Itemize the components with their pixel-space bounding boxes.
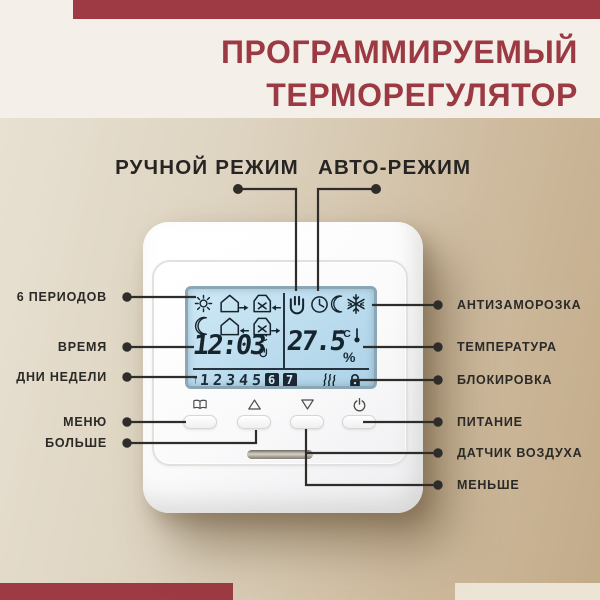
increase-button xyxy=(237,415,271,429)
time-dot xyxy=(122,342,131,351)
page-title: ПРОГРАММИРУЕМЫЙ ТЕРМОРЕГУЛЯТОР xyxy=(221,31,578,117)
arrow-up-icon xyxy=(245,396,263,412)
callout-temperature: ТЕМПЕРАТУРА xyxy=(457,339,557,355)
day-1: 1 xyxy=(199,371,210,389)
callout-less: МЕНЬШЕ xyxy=(457,477,519,493)
snowflake-antifreeze-icon xyxy=(345,293,367,315)
menu-dot xyxy=(122,417,131,426)
periods-dot xyxy=(122,292,131,301)
day-7-active: 7 xyxy=(283,373,297,387)
weekdays-dot xyxy=(122,372,131,381)
manual-mode-label: РУЧНОЙ РЕЖИМ xyxy=(107,157,307,179)
power-button xyxy=(342,415,376,429)
day-5: 5 xyxy=(251,371,262,389)
lcd-separator-line xyxy=(193,368,369,370)
title-line-1: ПРОГРАММИРУЕМЫЙ xyxy=(221,31,578,74)
clock-auto-icon xyxy=(310,295,329,314)
thermometer-icon xyxy=(353,327,361,344)
decrease-button xyxy=(290,415,324,429)
time-readout: 12:03 xyxy=(191,330,266,361)
lcd-display: 12:03 °C xyxy=(185,286,377,389)
power-dot xyxy=(433,417,442,426)
callout-more: БОЛЬШЕ xyxy=(45,435,107,451)
auto-mode-dot xyxy=(371,184,381,194)
temperature-unit-celsius: °C xyxy=(339,328,351,340)
auto-mode-label: АВТО-РЕЖИМ xyxy=(318,157,470,179)
callout-weekdays: ДНИ НЕДЕЛИ xyxy=(16,369,107,385)
percent-symbol: % xyxy=(343,349,355,365)
sun-icon xyxy=(194,294,213,313)
callout-menu: МЕНЮ xyxy=(63,414,107,430)
temperature-readout: 27.5 xyxy=(285,326,346,357)
work-arrive-icon xyxy=(251,293,282,314)
day-3: 3 xyxy=(225,371,236,389)
weekday-row: ↑ 1 2 3 4 5 6 7 xyxy=(193,372,362,388)
day-2: 2 xyxy=(212,371,223,389)
heating-waves-icon xyxy=(322,372,337,388)
lock-dot xyxy=(433,375,442,384)
time-unit-celsius: °C xyxy=(257,333,268,344)
bottom-accent-bar xyxy=(0,583,233,600)
day-6-active: 6 xyxy=(265,373,279,387)
manual-mode-dot xyxy=(233,184,243,194)
air-sensor-slot xyxy=(247,450,313,459)
hand-manual-icon xyxy=(287,293,308,318)
callout-antifreeze: АНТИЗАМОРОЗКА xyxy=(457,297,581,313)
arrow-down-icon xyxy=(298,396,316,412)
menu-book-icon xyxy=(191,396,209,412)
antifreeze-dot xyxy=(433,300,442,309)
moon-night-icon xyxy=(330,294,346,314)
callout-time: ВРЕМЯ xyxy=(58,339,107,355)
infographic-page: ПРОГРАММИРУЕМЫЙ ТЕРМОРЕГУЛЯТОР РУЧНОЙ РЕ… xyxy=(0,0,600,600)
callout-6-periods: 6 ПЕРИОДОВ xyxy=(17,289,107,305)
temperature-dot xyxy=(433,342,442,351)
thermostat-device: 12:03 °C xyxy=(143,222,423,513)
callout-air-sensor: ДАТЧИК ВОЗДУХА xyxy=(457,445,582,461)
home-leave-icon xyxy=(219,293,250,314)
air-sensor-dot xyxy=(433,448,442,457)
more-dot xyxy=(122,438,131,447)
day-4: 4 xyxy=(238,371,249,389)
keylock-icon xyxy=(348,373,362,388)
hand-small-icon xyxy=(258,346,269,359)
less-dot xyxy=(433,480,442,489)
callout-power: ПИТАНИЕ xyxy=(457,414,523,430)
top-accent-bar xyxy=(73,0,600,19)
menu-button xyxy=(183,415,217,429)
bottom-right-block xyxy=(455,583,600,600)
title-line-2: ТЕРМОРЕГУЛЯТОР xyxy=(221,74,578,117)
day-cursor: ↑ xyxy=(193,374,199,386)
power-icon xyxy=(350,396,368,412)
callout-lock: БЛОКИРОВКА xyxy=(457,372,552,388)
